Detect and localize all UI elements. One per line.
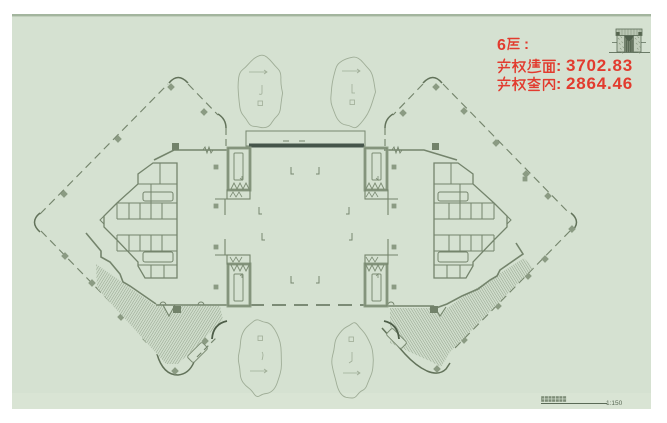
svg-text::: : bbox=[556, 76, 561, 93]
svg-text::: : bbox=[524, 36, 529, 53]
svg-text::: : bbox=[556, 58, 561, 75]
svg-text:3702.83: 3702.83 bbox=[566, 56, 633, 75]
svg-text:6: 6 bbox=[497, 37, 506, 54]
svg-text:1:150: 1:150 bbox=[606, 400, 623, 407]
svg-text:2864.46: 2864.46 bbox=[566, 74, 633, 93]
